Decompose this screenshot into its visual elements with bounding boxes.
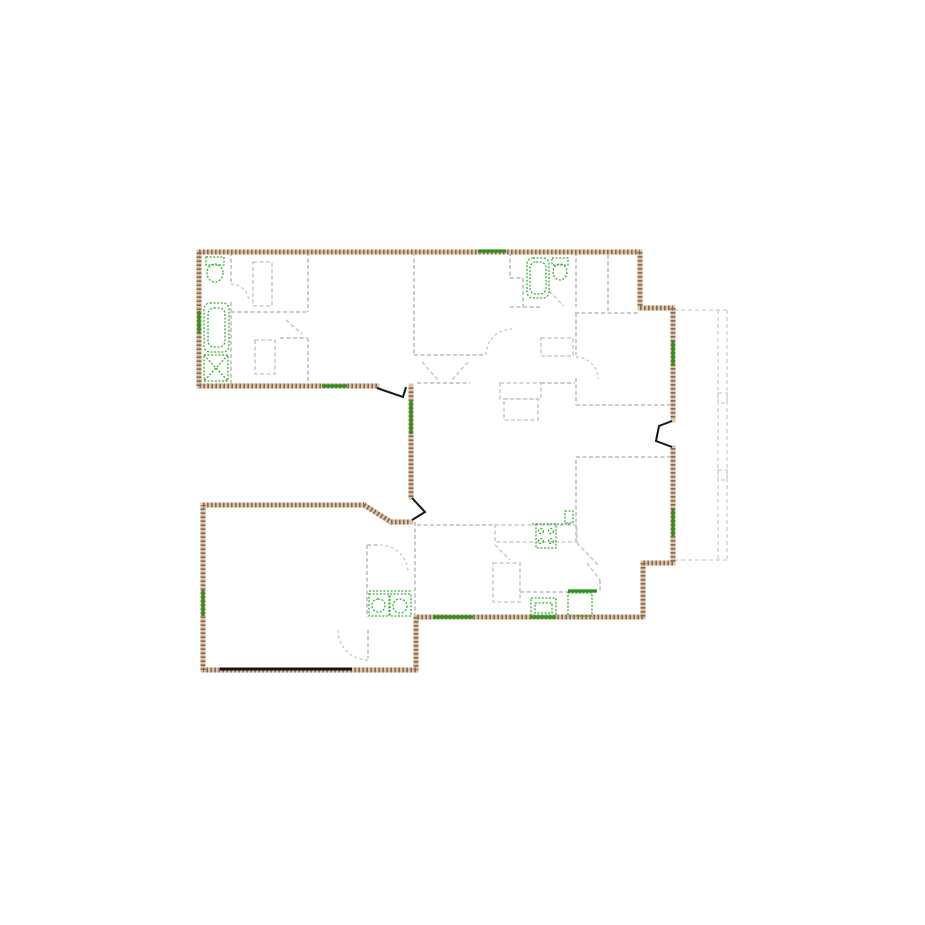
sink-bowl-icon: [535, 603, 552, 613]
deck-post: [718, 470, 727, 480]
interior-feature: [504, 399, 538, 420]
door-jamb-mark: [577, 543, 598, 565]
washer-icon: [369, 594, 389, 616]
door-leaf: [412, 498, 425, 520]
door-jamb-mark: [495, 545, 510, 560]
door-swing-arc: [338, 630, 368, 660]
door-leaf: [656, 421, 672, 447]
cooktop-icon: [536, 524, 556, 548]
toilet-tank-icon: [552, 258, 568, 265]
door-swing-arc: [380, 545, 408, 573]
door-swing-arc: [576, 357, 598, 379]
burner-icon: [539, 529, 544, 534]
deck-post: [718, 393, 727, 403]
floor-plan-viewport: [0, 0, 925, 925]
door-swing-arc: [486, 329, 512, 355]
floor-plan-canvas: [0, 0, 925, 925]
cooktop-side-icon: [565, 511, 573, 523]
washer-drum-icon: [372, 599, 385, 612]
toilet-bowl-icon: [207, 264, 223, 282]
interior-feature: [493, 563, 520, 602]
bathtub-outer-icon: [204, 303, 229, 352]
door-leaf: [377, 387, 406, 397]
bathtub-inner-icon: [208, 308, 225, 347]
door-jamb-mark: [286, 320, 302, 334]
dishwasher-icon: [568, 593, 592, 616]
door-jamb-mark: [422, 362, 438, 380]
bathtub-inner-icon: [530, 262, 546, 294]
burner-icon: [549, 529, 554, 534]
interior-feature: [541, 338, 573, 356]
door-jamb-mark: [549, 291, 564, 306]
door-jamb-mark: [452, 362, 468, 380]
toilet-bowl-icon: [553, 264, 567, 280]
interior-feature: [253, 262, 272, 306]
interior-feature: [255, 340, 275, 374]
door-jamb-mark: [587, 563, 600, 580]
dryer-drum-icon: [393, 599, 407, 613]
interior-feature: [500, 383, 541, 399]
door-swing-arc: [231, 284, 249, 302]
